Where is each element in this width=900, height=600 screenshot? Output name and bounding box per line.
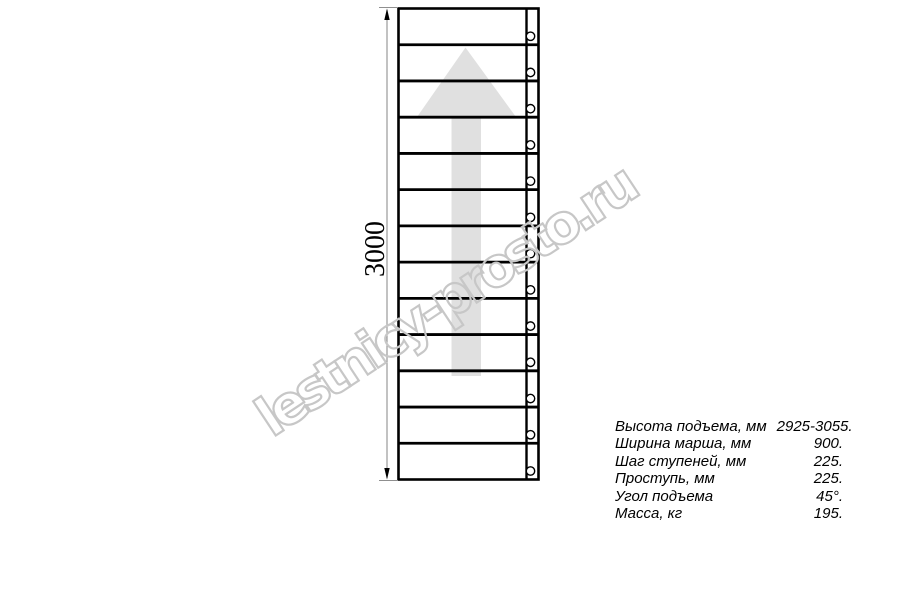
stringer-hole xyxy=(526,286,534,294)
spec-value: 225. xyxy=(814,470,843,487)
spec-row: Шаг ступеней, мм 225. xyxy=(615,453,843,470)
stringer-hole xyxy=(526,177,534,185)
technical-drawing-page: 3000 lestnicy-prosto.ru Высота подъема, … xyxy=(0,0,900,600)
stringer-hole xyxy=(526,394,534,402)
spec-value: 225. xyxy=(814,453,843,470)
spec-value: 195. xyxy=(814,505,843,522)
spec-row: Высота подъема, мм 2925-3055. xyxy=(615,418,843,435)
stringer-hole xyxy=(526,32,534,40)
spec-row: Масса, кг 195. xyxy=(615,505,843,522)
spec-label: Угол подъема xyxy=(615,488,713,505)
stringer-hole xyxy=(526,141,534,149)
stringer-hole xyxy=(526,431,534,439)
spec-label: Масса, кг xyxy=(615,505,682,522)
dimension-label: 3000 xyxy=(360,221,391,277)
spec-label: Ширина марша, мм xyxy=(615,435,751,452)
stringer-hole xyxy=(526,68,534,76)
stringer-hole xyxy=(526,104,534,112)
spec-value: 900. xyxy=(814,435,843,452)
spec-value: 2925-3055. xyxy=(777,418,853,435)
dimension-arrowhead-bottom-icon xyxy=(384,468,389,480)
spec-value: 45°. xyxy=(816,488,843,505)
spec-row: Ширина марша, мм 900. xyxy=(615,435,843,452)
height-dimension-group: 3000 xyxy=(360,8,398,481)
spec-table: Высота подъема, мм 2925-3055. Ширина мар… xyxy=(615,418,843,522)
watermark-text: lestnicy-prosto.ru xyxy=(244,151,650,449)
spec-label: Проступь, мм xyxy=(615,470,715,487)
stringer-hole xyxy=(526,322,534,330)
spec-row: Угол подъема 45°. xyxy=(615,488,843,505)
spec-label: Высота подъема, мм xyxy=(615,418,767,435)
stringer-hole xyxy=(526,467,534,475)
spec-label: Шаг ступеней, мм xyxy=(615,453,746,470)
spec-row: Проступь, мм 225. xyxy=(615,470,843,487)
stringer-hole xyxy=(526,358,534,366)
dimension-arrowhead-top-icon xyxy=(384,9,389,21)
